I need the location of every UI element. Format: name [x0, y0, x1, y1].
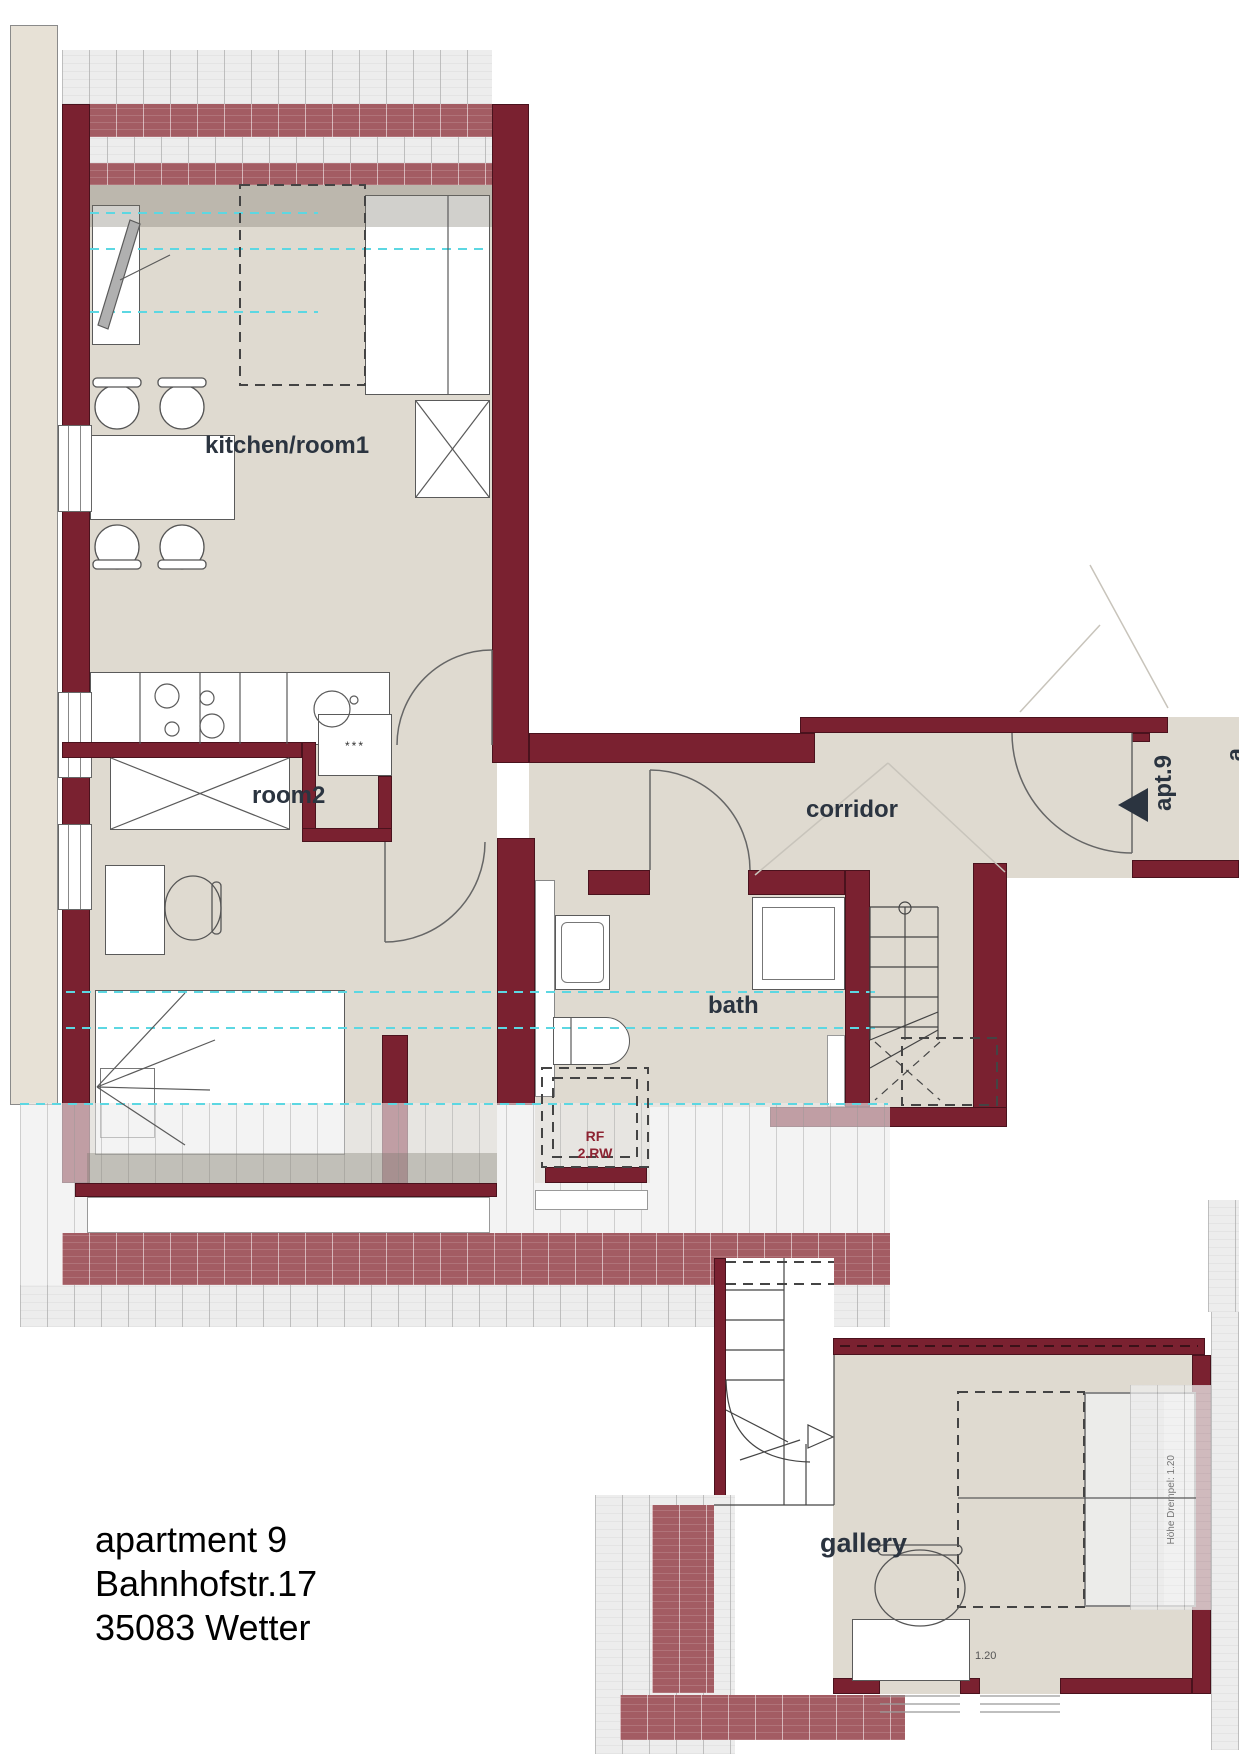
shower-inner [762, 907, 835, 980]
wall-stair-right [973, 863, 1007, 1127]
entrance-label: apt.9 [1150, 755, 1178, 811]
toilet [553, 1017, 630, 1065]
roof-band-wall-2 [80, 163, 529, 185]
window-left-3 [58, 824, 92, 910]
low-ceiling-strip-room2 [87, 1153, 497, 1183]
wall-rf-block [545, 1167, 647, 1183]
cabinet-stars: *** [318, 714, 392, 776]
roof-band-top-2 [80, 137, 529, 163]
floor-plan-canvas: *** [0, 0, 1239, 1754]
bath-vanity-strip [535, 880, 555, 1097]
wall-step-h [302, 828, 392, 842]
low-ceiling-strip-kitchen [90, 185, 492, 227]
desk-room2 [105, 865, 165, 955]
wall-corridor-bottom-right [1132, 860, 1239, 878]
wall-kitchen-bottom [62, 742, 302, 758]
drempel-annotation: Höhe Drempel: 1.20 [1166, 1455, 1177, 1545]
address-line-1: apartment 9 [95, 1518, 317, 1562]
entrance-arrow-icon [1118, 788, 1148, 822]
neighbor-building-strip [10, 25, 58, 1105]
wall-bath-left [497, 838, 535, 1105]
roof-band-top-1 [62, 50, 492, 104]
room-label-room2: room2 [252, 782, 325, 810]
washbasin-inner [561, 922, 604, 983]
adjacent-unit-label-fragment: a [1222, 748, 1239, 761]
stair-shaft-lower [726, 1258, 834, 1505]
wall-corridor-top-right [800, 717, 1168, 733]
window-row-bottom-mid [535, 1190, 648, 1210]
stair-wall-gap [827, 1035, 845, 1107]
room-label-corridor: corridor [806, 796, 898, 824]
section-diag-3 [1090, 565, 1168, 708]
wall-kitchen-right [492, 104, 529, 763]
wall-gallery-bottom-b [1060, 1678, 1192, 1694]
window-row-bottom-left [87, 1197, 490, 1233]
wall-gallery-top [833, 1338, 1205, 1355]
floor-entry-right [1168, 717, 1239, 860]
cabinet-stars-label: *** [345, 739, 365, 753]
hatch-gallery-right-outer [1211, 1310, 1239, 1750]
room-label-gallery: gallery [820, 1528, 907, 1559]
section-diag-4 [1020, 625, 1100, 712]
hatch-right-edge [1208, 1200, 1239, 1312]
hatch-gallery-left-wall [652, 1505, 714, 1693]
rf-line1: RF [542, 1128, 648, 1145]
rf-annotation: RF 2.RW [542, 1128, 648, 1162]
address-line-2: Bahnhofstr.17 [95, 1562, 317, 1606]
wall-room2-bottom [75, 1183, 497, 1197]
wall-bath-right [845, 870, 870, 1107]
room-label-kitchen: kitchen/room1 [205, 432, 369, 460]
wall-corridor-top-left [529, 733, 815, 763]
room-label-bath: bath [708, 992, 759, 1020]
wall-door-stub [1132, 733, 1150, 742]
address-line-3: 35083 Wetter [95, 1606, 317, 1650]
address-block: apartment 9 Bahnhofstr.17 35083 Wetter [95, 1518, 317, 1650]
hatch-gallery-bottom-wall [620, 1695, 905, 1740]
window-left-2 [58, 692, 92, 778]
rf-line2: 2.RW [542, 1145, 648, 1162]
window-left-1 [58, 425, 92, 512]
crossed-cabinet-kitchen [415, 400, 490, 498]
wall-bath-top-a [588, 870, 650, 895]
gallery-desk [852, 1619, 970, 1681]
wall-left-outer [62, 104, 90, 1183]
level-annotation: 1.20 [975, 1650, 996, 1662]
wall-shaft-left [714, 1258, 726, 1505]
wall-bath-top-b [748, 870, 845, 895]
roof-band-wall-1 [62, 104, 529, 137]
